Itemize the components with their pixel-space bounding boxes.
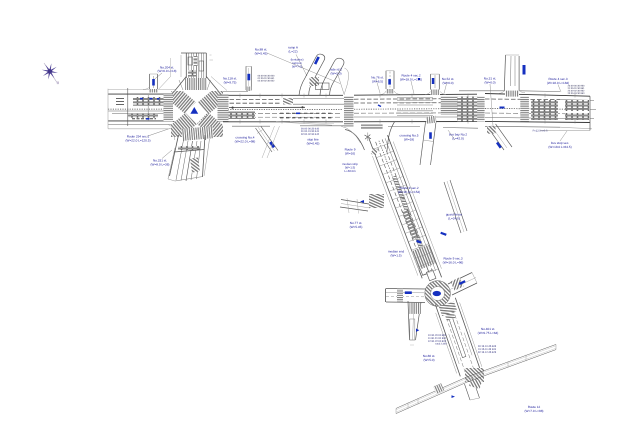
svg-text:22:00-02:30 982: 22:00-02:30 982 (568, 90, 585, 93)
svg-text:ramp A(L=22): ramp A(L=22) (288, 46, 299, 54)
svg-text:Route 4 sec.3(W=18.0 L=184): Route 4 sec.3(W=18.0 L=184) (547, 77, 569, 85)
svg-text:No.86 st.(W=5.0): No.86 st.(W=5.0) (423, 354, 436, 362)
svg-text:No.77 st.(W=5.45): No.77 st.(W=5.45) (350, 221, 363, 229)
svg-text:crossing No.4(W=22.0 L=98): crossing No.4(W=22.0 L=98) (235, 136, 256, 144)
svg-text:20:00-00:30 980: 20:00-00:30 980 (568, 84, 585, 87)
svg-text:No.331 st.(W=8.0 L=36): No.331 st.(W=8.0 L=36) (151, 159, 170, 167)
svg-text:Route 9(W=16): Route 9(W=16) (345, 148, 356, 156)
svg-text:side rd 2(W=5.0): side rd 2(W=5.0) (330, 68, 342, 76)
svg-text:total 2,400: total 2,400 (435, 342, 447, 345)
svg-text:No.204 st.(W=6.0 L=18): No.204 st.(W=6.0 L=18) (158, 65, 177, 73)
svg-text:02:15-12:45 625: 02:15-12:45 625 (478, 351, 497, 354)
svg-text:bus stop sec.(W=18.0 L=64.5): bus stop sec.(W=18.0 L=64.5) (548, 141, 571, 149)
svg-text:02:00-02:30 662: 02:00-02:30 662 (258, 80, 275, 83)
svg-text:Route 254 sec.1(W=22.0 L=120.5: Route 254 sec.1(W=22.0 L=120.5) (126, 135, 151, 143)
svg-text:02:00-02:30 442: 02:00-02:30 442 (301, 133, 320, 136)
svg-text:21:00-01:30 981: 21:00-01:30 981 (568, 87, 585, 90)
svg-text:23:00-03:30 983: 23:00-03:30 983 (568, 92, 585, 95)
svg-text:No.88 st.(W=5.45): No.88 st.(W=5.45) (255, 48, 268, 56)
svg-text:No.31 st.(W=6.0): No.31 st.(W=6.0) (484, 77, 497, 85)
svg-text:No.76 st.(W=6.5): No.76 st.(W=6.5) (371, 76, 384, 84)
svg-text:P=12.5 t=0.5: P=12.5 t=0.5 (533, 130, 548, 133)
svg-text:Route 9 sec.2(W=16.0 L=154): Route 9 sec.2(W=16.0 L=154) (398, 186, 420, 194)
svg-text:Route 9 sec.3(W=16.0 L=96): Route 9 sec.3(W=16.0 L=96) (443, 257, 464, 265)
svg-text:stop line(W=0.45): stop line(W=0.45) (307, 138, 320, 146)
svg-text:No.52 st.(W=6.0): No.52 st.(W=6.0) (442, 77, 455, 85)
svg-text:(tentative)ramp-in(W=7.0): (tentative)ramp-in(W=7.0) (291, 58, 304, 69)
svg-text:No.118 st.(W=9.75): No.118 st.(W=9.75) (223, 77, 237, 85)
svg-text:Route 4 sec.2(W=18.0 L=210): Route 4 sec.2(W=18.0 L=210) (400, 74, 422, 82)
